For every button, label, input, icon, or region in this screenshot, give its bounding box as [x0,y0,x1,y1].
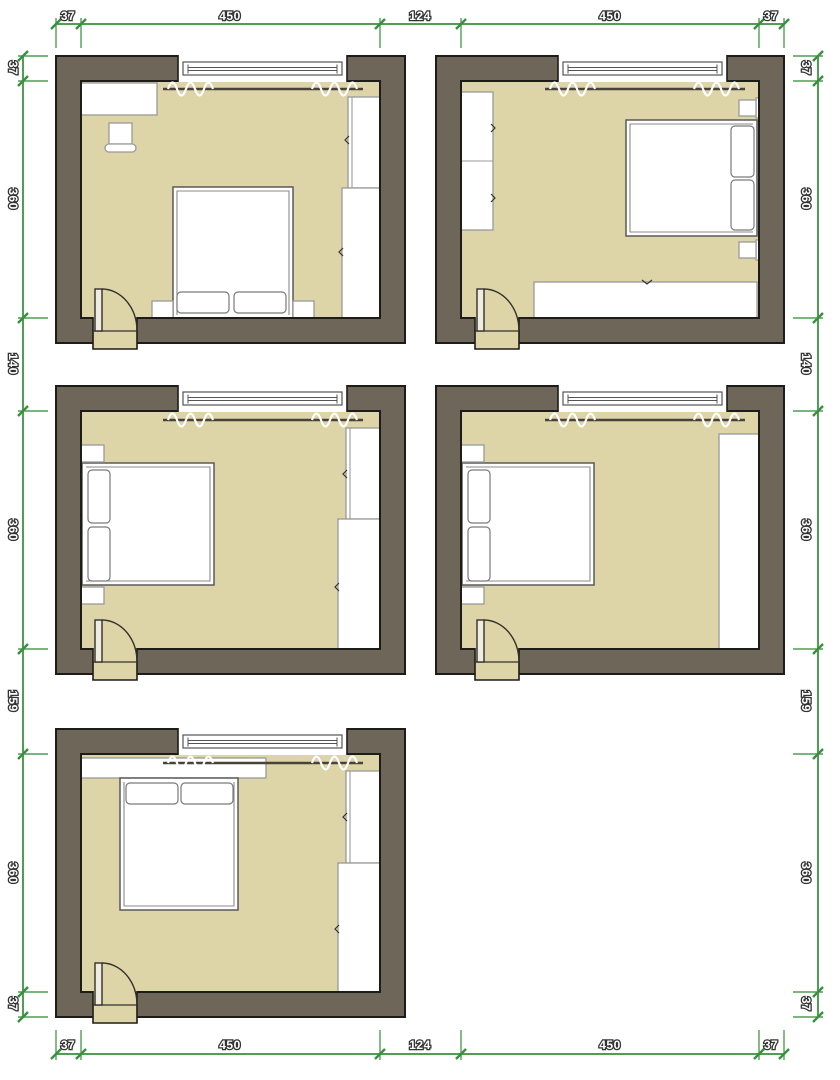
nightstand [293,301,314,318]
dimension-chain-top: 37 450 124 450 37 [51,9,789,48]
dim-label: 450 [599,9,621,23]
wardrobe-tall [343,428,380,519]
dim-label: 450 [219,9,241,23]
dim-label: 159 [799,690,813,712]
pillow [88,470,110,523]
dim-label: 140 [799,353,813,375]
chair [105,123,136,152]
pillow [177,292,229,313]
window [558,385,727,412]
dim-label: 360 [6,862,20,884]
dim-label: 37 [6,61,20,75]
wardrobe-tall [343,771,380,863]
nightstand [739,240,759,260]
floor-plan-drawing: 37 450 124 450 37 37 450 124 450 37 37 3… [0,0,840,1080]
double-bed [462,463,594,585]
double-bed [82,463,214,585]
pillow [468,470,490,523]
pillow [181,783,233,804]
wardrobe-wide [335,863,380,992]
dimension-chain-left: 37 360 140 360 159 360 37 [6,51,48,1022]
double-bed [626,120,757,236]
dim-label: 37 [799,61,813,75]
wardrobe [461,92,495,230]
dim-label: 360 [799,188,813,210]
room-layout-middle-right [436,385,784,680]
dim-label: 37 [799,997,813,1011]
pillow [731,126,754,177]
pillow [234,292,286,313]
dim-label: 37 [6,997,20,1011]
dim-label: 140 [6,353,20,375]
nightstand [739,98,759,118]
window [178,728,347,755]
dim-label: 37 [61,1038,75,1052]
dim-label: 450 [599,1038,621,1052]
room-layout-top-left [56,55,405,349]
dim-label: 159 [6,690,20,712]
dim-label: 450 [219,1038,241,1052]
dim-label: 124 [409,9,431,23]
nightstand [461,445,484,462]
dim-label: 360 [6,188,20,210]
double-bed [120,778,238,910]
dimension-chain-bottom: 37 450 124 450 37 [51,1030,789,1060]
pillow [88,527,110,581]
dim-label: 360 [799,519,813,541]
dim-label: 37 [764,9,778,23]
dim-label: 37 [764,1038,778,1052]
dim-label: 124 [409,1038,431,1052]
dim-label: 360 [799,862,813,884]
wardrobe-wide [335,519,380,649]
room-layout-top-right [436,55,784,349]
floor-plan-sheet: 37 450 124 450 37 37 450 124 450 37 37 3… [0,0,840,1080]
double-bed [173,187,293,319]
dim-label: 37 [61,9,75,23]
wall-shelf [81,758,266,778]
full-wall-wardrobe [719,434,759,649]
room-layout-bottom-left [56,728,405,1023]
pillow [126,783,178,804]
window [558,55,727,82]
pillow [468,527,490,581]
dim-label: 360 [6,519,20,541]
window [178,385,347,412]
low-dresser [534,280,757,318]
nightstand [461,587,484,604]
wardrobe-tall [345,97,380,188]
nightstand [152,301,173,318]
dimension-chain-right: 37 360 140 360 159 360 37 [793,51,823,1022]
window [178,55,347,82]
nightstand [81,445,104,462]
pillow [731,180,754,230]
sideboard [81,83,157,115]
room-layout-middle-left [56,385,405,680]
wardrobe-wide [339,188,380,318]
nightstand [81,587,104,604]
